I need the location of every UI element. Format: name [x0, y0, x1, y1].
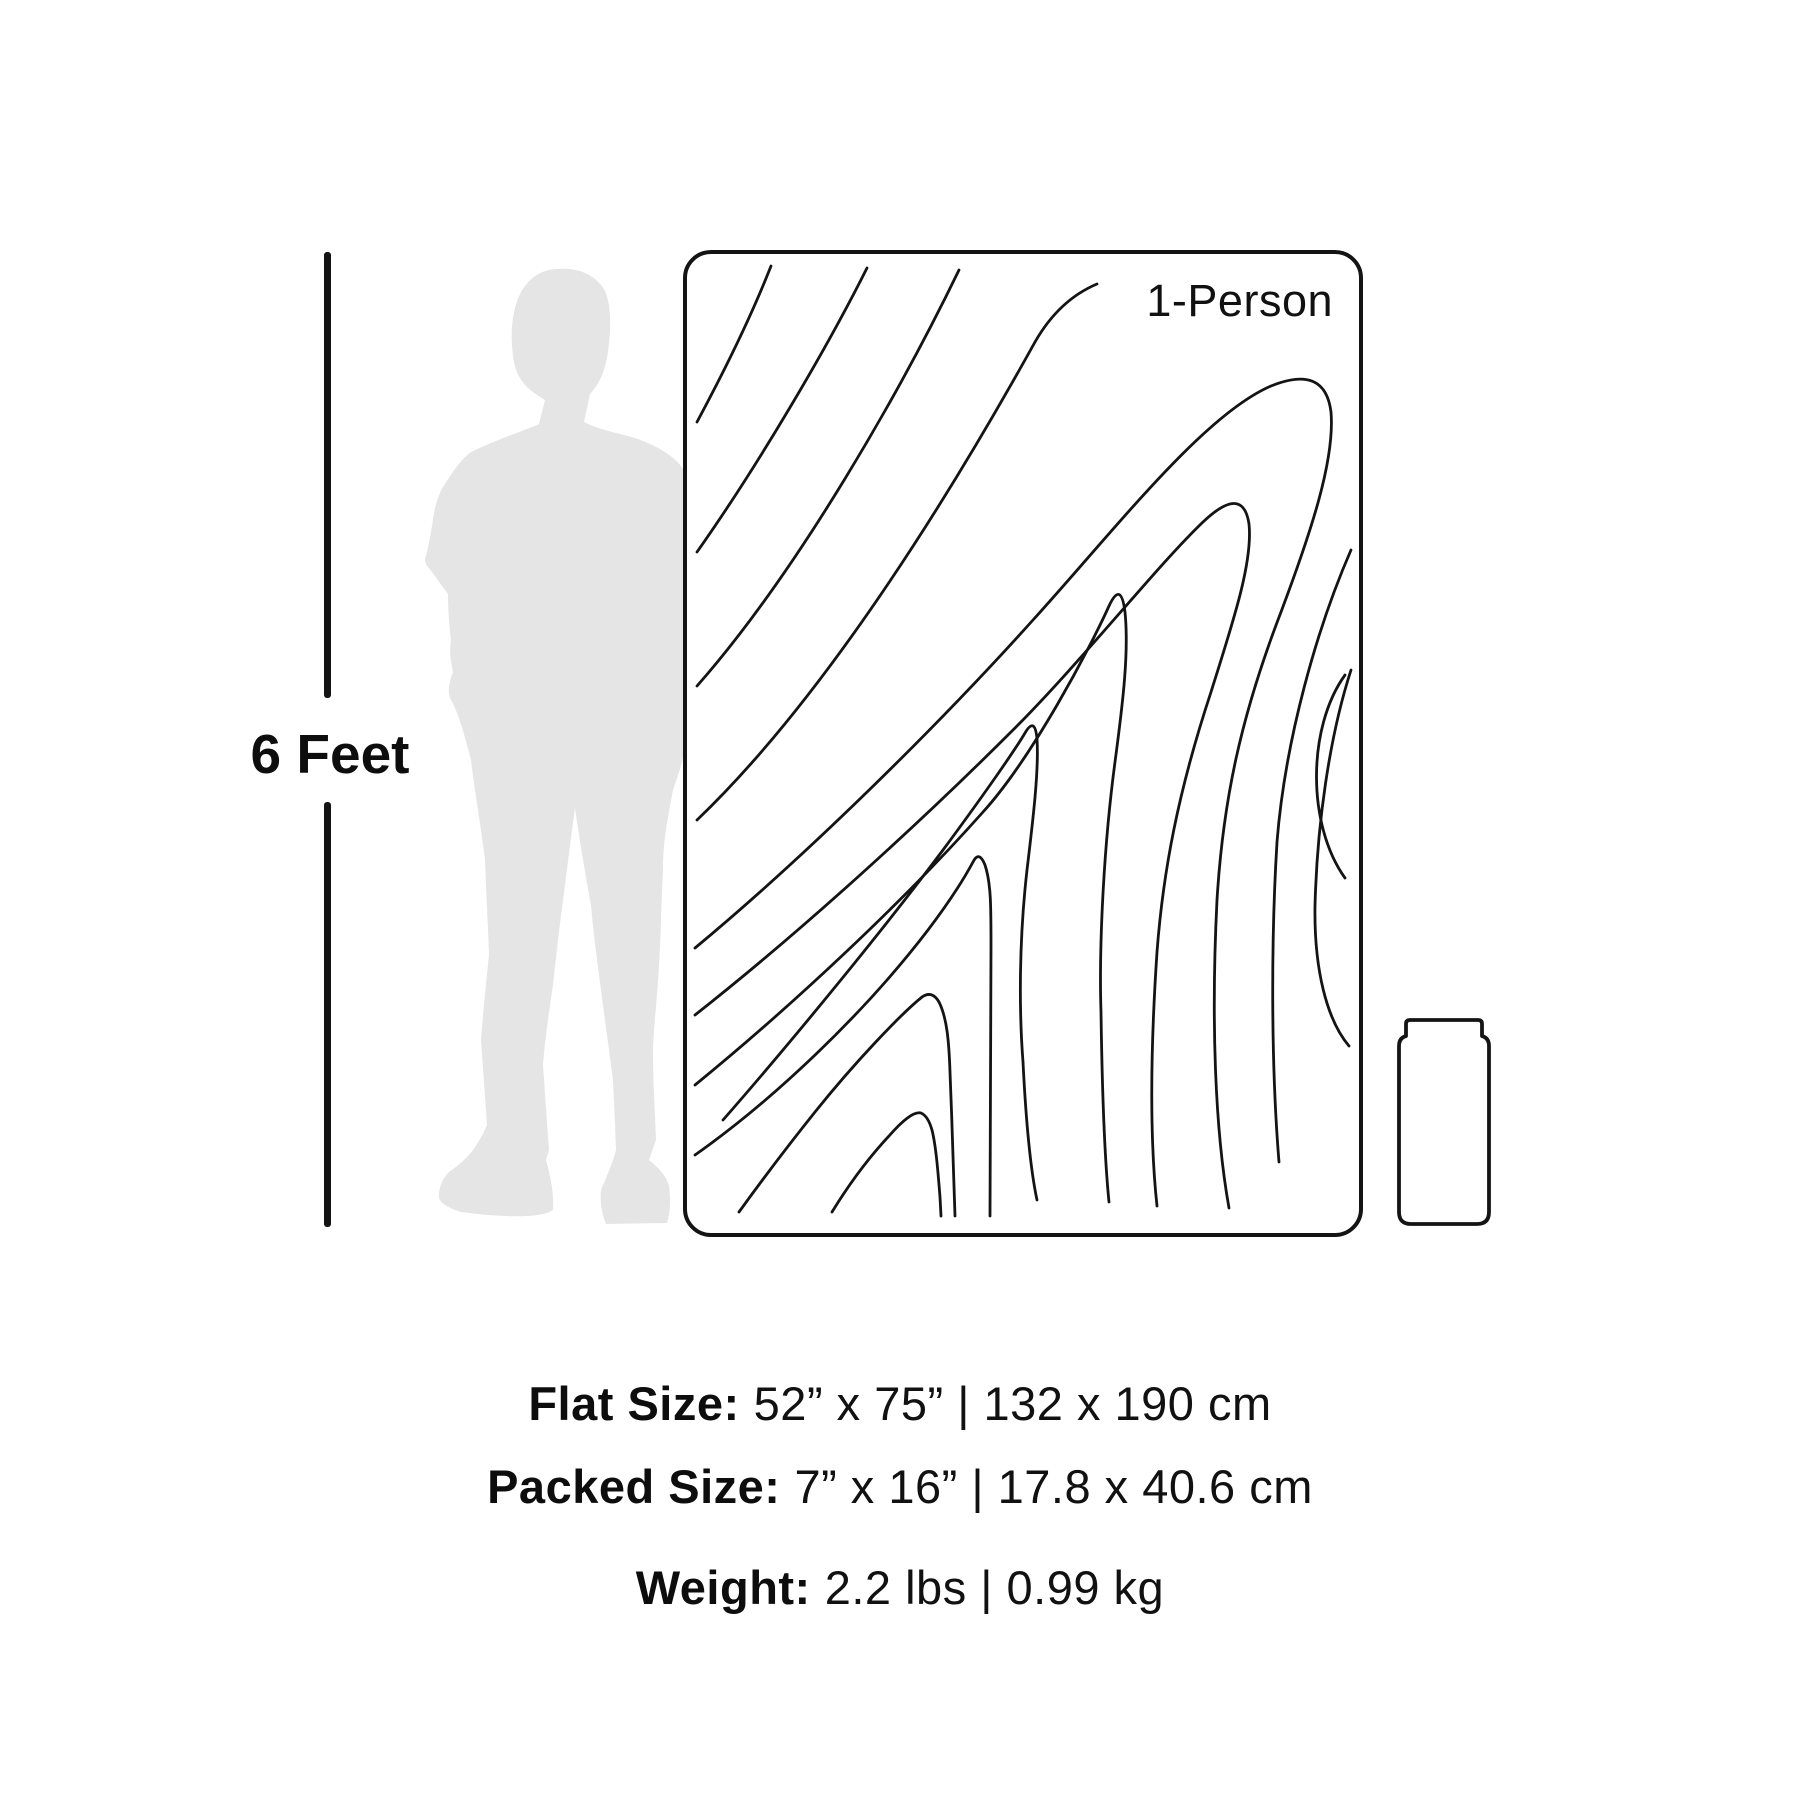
size-comparison-diagram: 6 Feet 1-Person Flat Size:52”: [0, 0, 1800, 1800]
measure-line-lower: [324, 802, 331, 1227]
measure-label: 6 Feet: [205, 722, 455, 786]
measure-line-upper: [324, 252, 331, 698]
packed-roll-figure: [1396, 1016, 1492, 1228]
spec-weight: Weight:2.2 lbs | 0.99 kg: [0, 1560, 1800, 1615]
spec-flat-size-value: 52” x 75” | 132 x 190 cm: [754, 1377, 1272, 1430]
spec-weight-value: 2.2 lbs | 0.99 kg: [825, 1561, 1164, 1614]
spec-flat-size-label: Flat Size:: [528, 1377, 739, 1430]
person-silhouette-icon: [420, 262, 700, 1237]
spec-packed-size: Packed Size:7” x 16” | 17.8 x 40.6 cm: [0, 1459, 1800, 1514]
spec-packed-size-label: Packed Size:: [487, 1460, 780, 1513]
spec-flat-size: Flat Size:52” x 75” | 132 x 190 cm: [0, 1376, 1800, 1431]
topographic-blanket-figure: 1-Person: [683, 250, 1363, 1237]
blanket-capacity-label: 1-Person: [1146, 275, 1333, 326]
blanket-outline: [685, 252, 1361, 1235]
spec-packed-size-value: 7” x 16” | 17.8 x 40.6 cm: [794, 1460, 1312, 1513]
spec-weight-label: Weight:: [636, 1561, 811, 1614]
packed-roll-outline: [1399, 1020, 1489, 1224]
